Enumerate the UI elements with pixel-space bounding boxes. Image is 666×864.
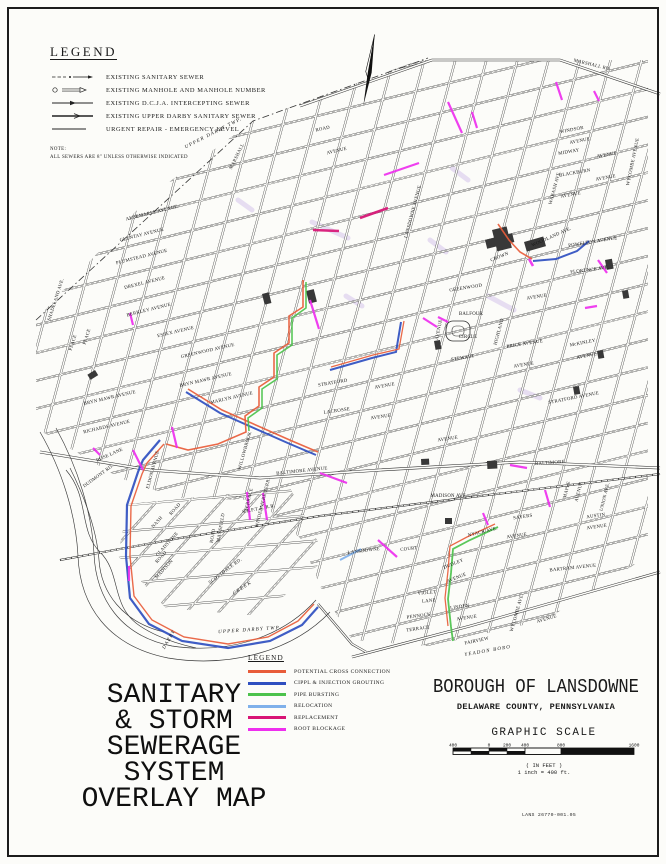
street-label: STRATFORD AVENUE [548, 391, 600, 406]
street-label: ROAD [315, 125, 331, 133]
map-title-line: OVERLAY MAP [34, 787, 314, 813]
building [421, 459, 429, 465]
borough-subtitle: DELAWARE COUNTY, PENNSYLVANIA [410, 702, 662, 712]
building [573, 386, 580, 395]
drawing-number: LANS 26770-001.05 [522, 813, 576, 818]
pencil-smudges [238, 168, 540, 398]
note-label: NOTE: [50, 147, 66, 152]
street-label: UNION AVE. [600, 482, 612, 512]
building [445, 518, 452, 524]
street-label: MANSFIELD [216, 513, 226, 543]
note-text: ALL SEWERS ARE 8" UNLESS OTHERWISE INDIC… [50, 155, 188, 160]
street-label: BERKLEY AVENUE [126, 303, 171, 319]
building [87, 370, 98, 380]
street-label: GREENWOOD [449, 283, 483, 293]
street-label: DUDMONT RD. [83, 464, 115, 489]
street-label: UPPER DARBY TWP. [218, 626, 282, 635]
street-label: BALFOUR [459, 312, 484, 317]
street-label: MIDWAY [558, 148, 580, 157]
graphic-scale-title: GRAPHIC SCALE [426, 727, 662, 739]
street-label: McKINLEY [570, 338, 597, 348]
overlay-segment-M [472, 112, 477, 128]
legend-item-label: EXISTING D.C.J.A. INTERCEPTING SEWER [106, 100, 250, 107]
street-label: SHADELAND AVE. [47, 278, 65, 322]
legend-item-label: EXISTING MANHOLE AND MANHOLE NUMBER [106, 87, 266, 94]
street-label: WABASH AVE. [549, 171, 563, 206]
legend-note: NOTE: ALL SEWERS ARE 8" UNLESS OTHERWISE… [50, 146, 280, 161]
street-label: WOODLAND AVE. [531, 227, 572, 249]
overlay-segment-M [529, 259, 533, 266]
street-label: SCOTTDALE RD. [208, 557, 243, 585]
street-label: PLACE [83, 328, 93, 345]
overlay-segment-M [384, 163, 419, 175]
street-label: LINDEN [450, 604, 470, 612]
map-title: SANITARY& STORMSEWERAGESYSTEMOVERLAY MAP [34, 683, 314, 813]
color-swatch [248, 670, 286, 673]
street-label: AVENUE [576, 352, 597, 361]
street-line [0, 489, 666, 611]
street-label: MADISON AVE. [431, 494, 468, 499]
street-label: VIOLET [417, 590, 436, 597]
legend-title: LEGEND [50, 44, 280, 60]
overlay-legend-label: POTENTIAL CROSS CONNECTION [294, 669, 390, 675]
street-label: BRYN MAWR AVENUE [83, 390, 136, 407]
overlay-legend-title: LEGEND [248, 654, 408, 662]
overlay-segment-M [423, 318, 437, 327]
street-label: BARTRAM AVENUE [549, 564, 596, 574]
north-arrow-icon [360, 34, 377, 106]
overlay-segment-M [594, 91, 599, 101]
overlay-segment-M [556, 82, 562, 100]
scale-bar-graphic: 40002004008001600 [439, 742, 649, 760]
legend-item: URGENT REPAIR - EMERGENCY LEVEL [50, 123, 280, 136]
map-sheet: UPPER DARBY TWP.ROADMARSHALLMARSHALL RD.… [0, 0, 666, 864]
street-label: WILLOWBROOK [238, 431, 254, 471]
street-label: AVENUE [374, 382, 395, 391]
overlay-segment-M [510, 465, 527, 468]
overlay-legend-item: POTENTIAL CROSS CONNECTION [248, 666, 408, 678]
street-line-fill [0, 489, 666, 611]
street-label: YEADON BORO [464, 645, 511, 658]
scale-units: ( IN FEET ) [426, 762, 662, 769]
street-label: AVENUE [526, 293, 547, 301]
street-line [0, 541, 666, 663]
street-label: PRICE AVENUE [506, 339, 543, 350]
borough-title-block: BOROUGH OF LANSDOWNE DELAWARE COUNTY, PE… [410, 676, 662, 712]
legend-existing-systems: LEGEND EXISTING SANITARY SEWEREXISTING M… [50, 44, 280, 161]
street-label: CROWN [490, 252, 510, 264]
borough-name: BOROUGH OF LANSDOWNE [425, 676, 647, 698]
street-label: CREEK [232, 581, 253, 597]
street-line-fill [0, 541, 666, 663]
urgent-repair-icon [50, 121, 98, 139]
scale-ratio: 1 inch = 400 ft. [426, 769, 662, 776]
street-label: ALBEMARLE AVENUE [125, 205, 178, 223]
building [434, 340, 441, 350]
street-label: AVENUE [456, 615, 477, 623]
street-label: MARLYN AVENUE [210, 391, 254, 406]
street-label: LANSDOWNE [347, 547, 380, 556]
street-label: FLORENCE AVE. [570, 266, 610, 276]
graphic-scale-block: GRAPHIC SCALE 40002004008001600 ( IN FEE… [426, 727, 662, 776]
scale-bar: 40002004008001600 [426, 742, 662, 760]
street-label: COURT [400, 546, 418, 553]
overlay-segment-M [585, 306, 597, 308]
legend-item-label: EXISTING SANITARY SEWER [106, 74, 204, 81]
overlay-segment-M [448, 102, 462, 133]
street-label: BLACKBURN [559, 168, 592, 179]
overlay-segment-M [310, 300, 319, 329]
creek-and-curved-roads [40, 428, 330, 661]
legend-item-label: EXISTING UPPER DARBY SANITARY SEWER [106, 113, 256, 120]
street-label: AVENUE [586, 524, 607, 532]
street-label: STEWART [451, 354, 475, 363]
street-label: BALTIMORE [535, 460, 565, 467]
overlay-segment-B [330, 322, 401, 370]
street-label: WYCOMBE AVENUE [626, 138, 641, 187]
building [487, 460, 497, 469]
street-label: MAPLE [563, 481, 572, 499]
street-label: BRYN MAWR AVENUE [179, 372, 232, 389]
street-label: GREENWOOD AVENUE [181, 343, 236, 360]
street-label: ESSEX AVENUE [157, 326, 195, 339]
street-label: AVENUE [370, 414, 391, 422]
building [622, 290, 629, 299]
street-label: SAYERS [513, 514, 533, 522]
legend-item-label: URGENT REPAIR - EMERGENCY LEVEL [106, 126, 239, 133]
pencil-smudge [488, 296, 514, 310]
street-label: FAIRVIEW [464, 636, 489, 646]
pencil-smudge [238, 200, 252, 210]
overlay-segment-R [313, 230, 339, 231]
